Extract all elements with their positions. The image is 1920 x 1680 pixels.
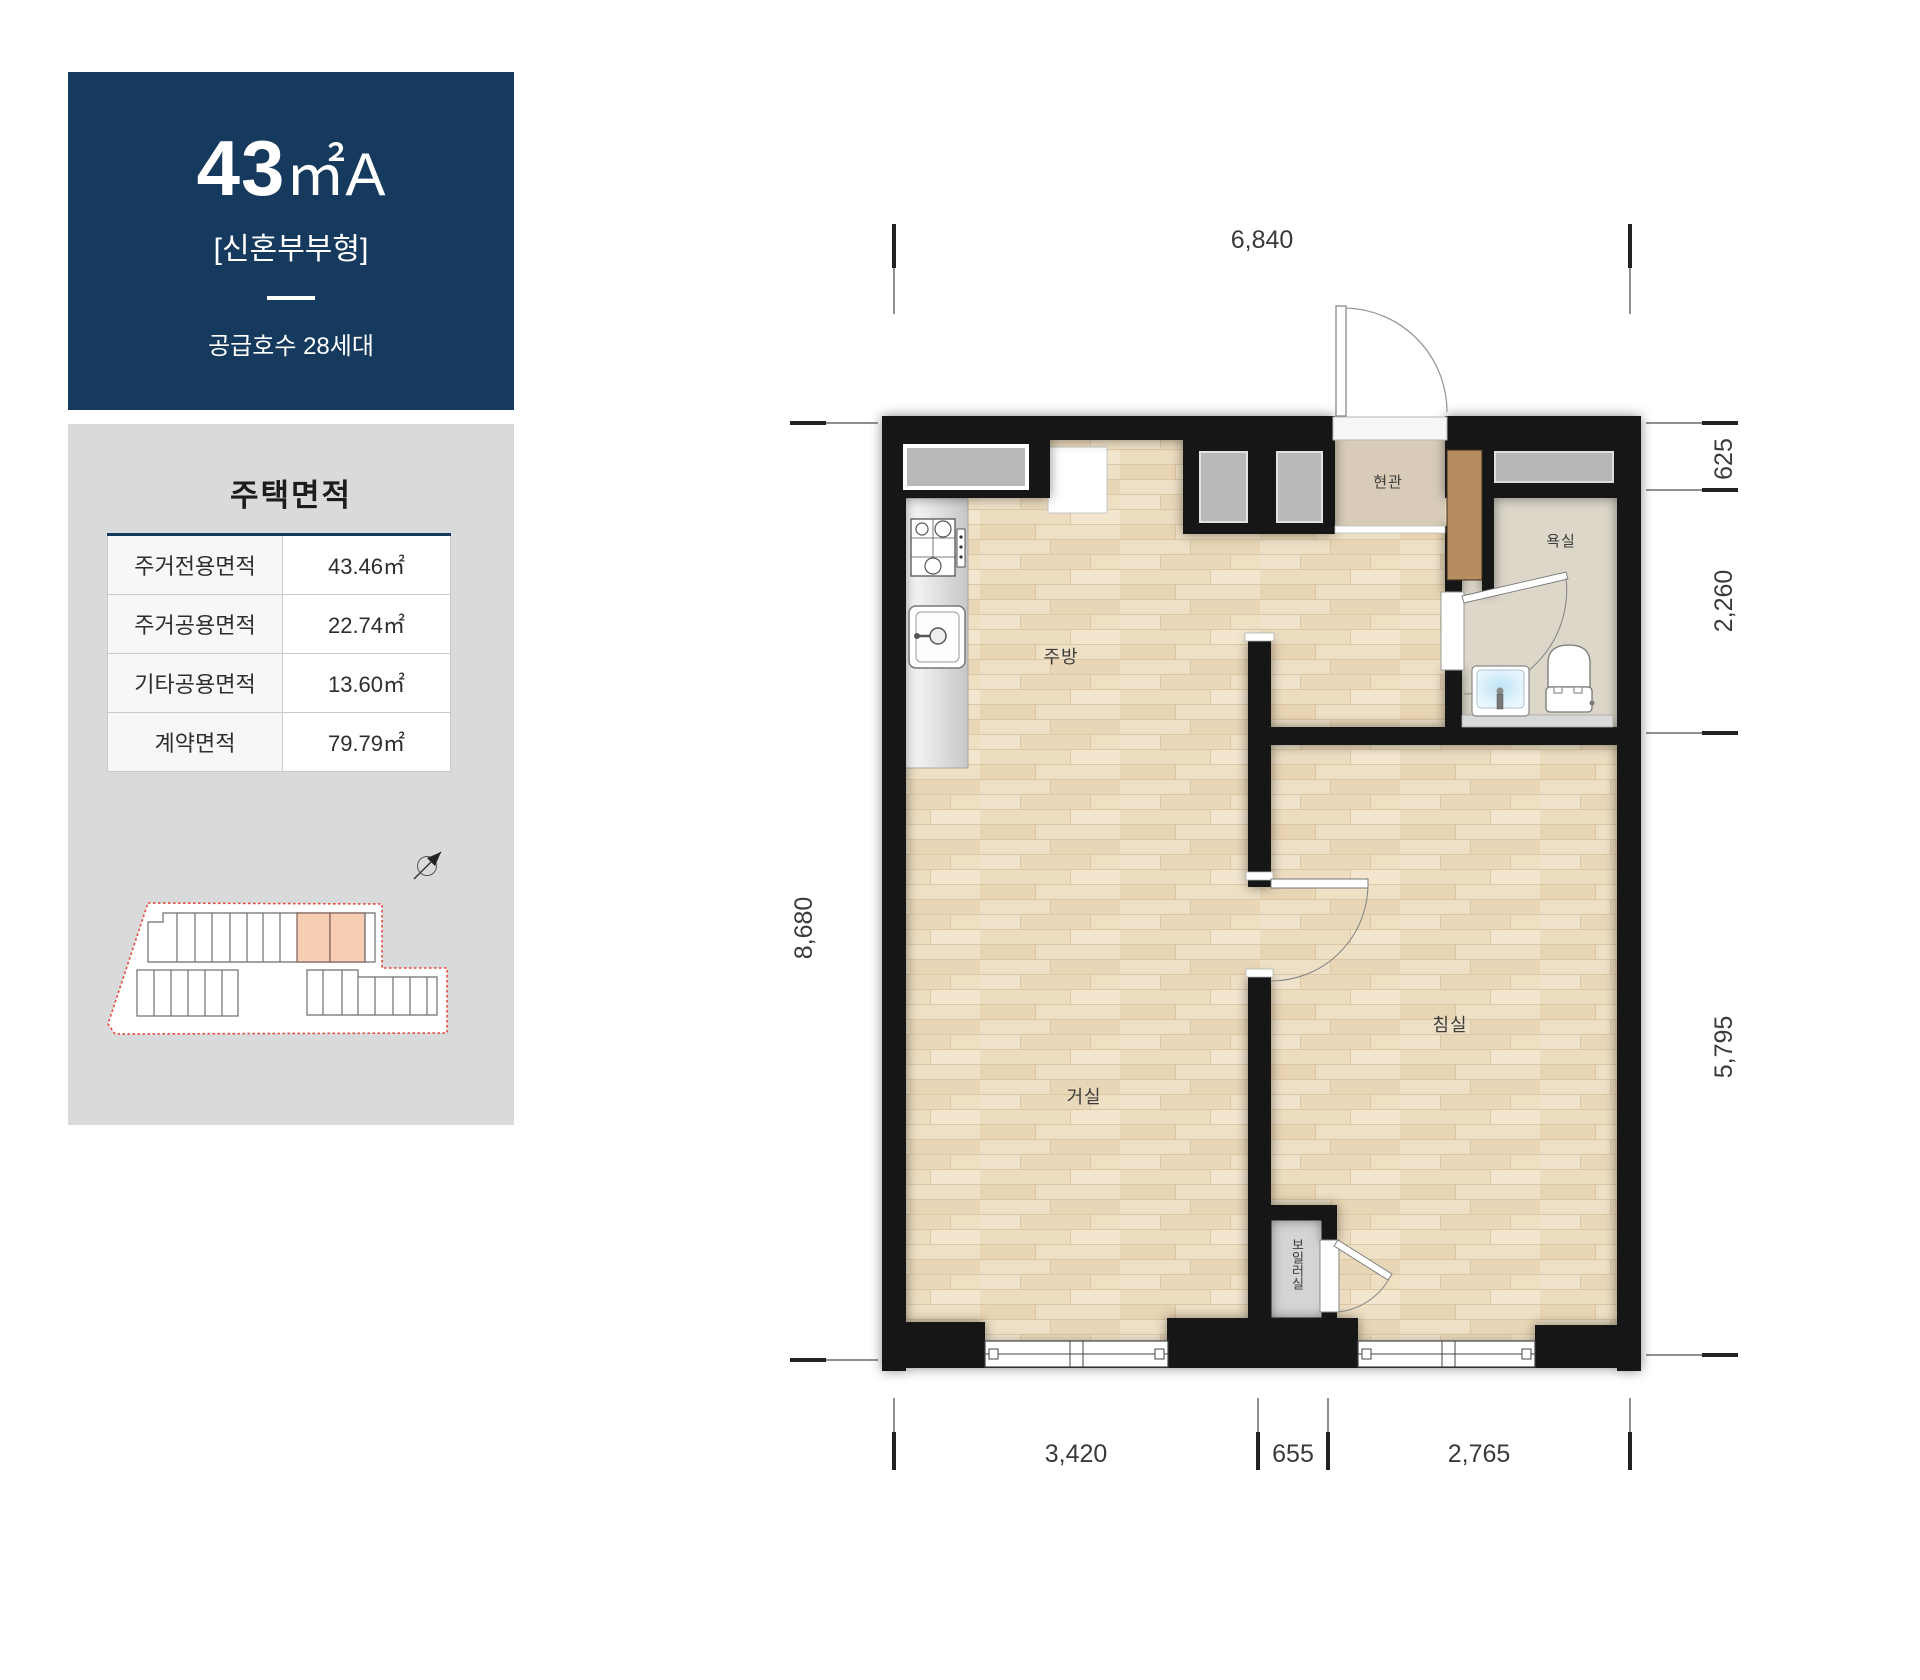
- room-label-kitchen: 주방: [1043, 647, 1078, 667]
- living-room-window: [985, 1341, 1168, 1367]
- room-label-living: 거실: [1066, 1087, 1101, 1107]
- dim-bottom-right: 2,765: [1448, 1440, 1511, 1468]
- dim-right-bottom: 5,795: [1710, 1016, 1738, 1079]
- dim-bottom-mid: 655: [1272, 1440, 1314, 1468]
- bedroom-window: [1358, 1341, 1535, 1367]
- room-label-bedroom: 침실: [1432, 1015, 1467, 1035]
- bath-sink-icon: [1472, 666, 1529, 716]
- dim-left: 8,680: [790, 897, 818, 960]
- dim-top: 6,840: [1231, 226, 1294, 254]
- dim-bottom-left: 3,420: [1045, 1440, 1108, 1468]
- entrance-closet: [1200, 452, 1247, 522]
- toilet-icon: [1546, 645, 1595, 712]
- room-label-boiler: 보일러실: [1290, 1238, 1305, 1290]
- room-label-entrance: 현관: [1373, 474, 1403, 491]
- room-label-bath: 욕실: [1546, 533, 1576, 550]
- shoe-cabinet: [1447, 450, 1482, 580]
- bath-shelf: [1462, 715, 1613, 727]
- dim-right-top: 625: [1710, 438, 1738, 480]
- kitchen-sink-icon: [909, 606, 965, 668]
- dim-right-mid: 2,260: [1710, 570, 1738, 633]
- entrance-closet: [1277, 452, 1322, 522]
- floor-plan: 주방 거실 침실 현관 욕실 보일러실: [0, 0, 1920, 1680]
- bath-cabinet: [1495, 452, 1613, 482]
